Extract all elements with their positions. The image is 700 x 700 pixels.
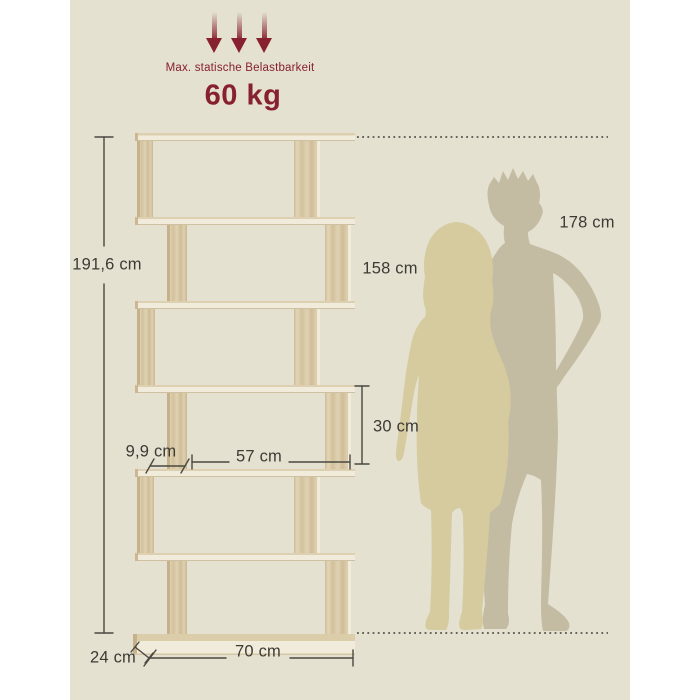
scene-background	[70, 0, 630, 700]
side-offset-label: 9,9 cm	[126, 443, 177, 462]
compartment-height-label: 30 cm	[373, 418, 419, 437]
scene-graphics	[70, 0, 630, 700]
load-arrow-icon	[206, 12, 222, 54]
total-height-dimension-line	[95, 137, 113, 633]
depth-label: 24 cm	[90, 649, 136, 668]
man-height-label: 178 cm	[559, 214, 614, 233]
total-height-label: 191,6 cm	[72, 256, 141, 275]
max-load-value: 60 kg	[205, 80, 282, 113]
total-width-label: 70 cm	[235, 643, 281, 662]
load-arrow-icon	[231, 12, 247, 54]
product-dimension-image: Max. statische Belastbarkeit 60 kg 191,6…	[0, 0, 700, 700]
shelf-graphic	[133, 133, 355, 655]
compartment-width-label: 57 cm	[236, 448, 282, 467]
woman-height-label: 158 cm	[362, 260, 417, 279]
compartment-height-dimension-line	[355, 386, 369, 464]
load-arrow-icon	[256, 12, 272, 54]
people-silhouettes	[396, 168, 601, 631]
shelf-boards	[135, 133, 355, 561]
max-load-title: Max. statische Belastbarkeit	[166, 62, 315, 74]
